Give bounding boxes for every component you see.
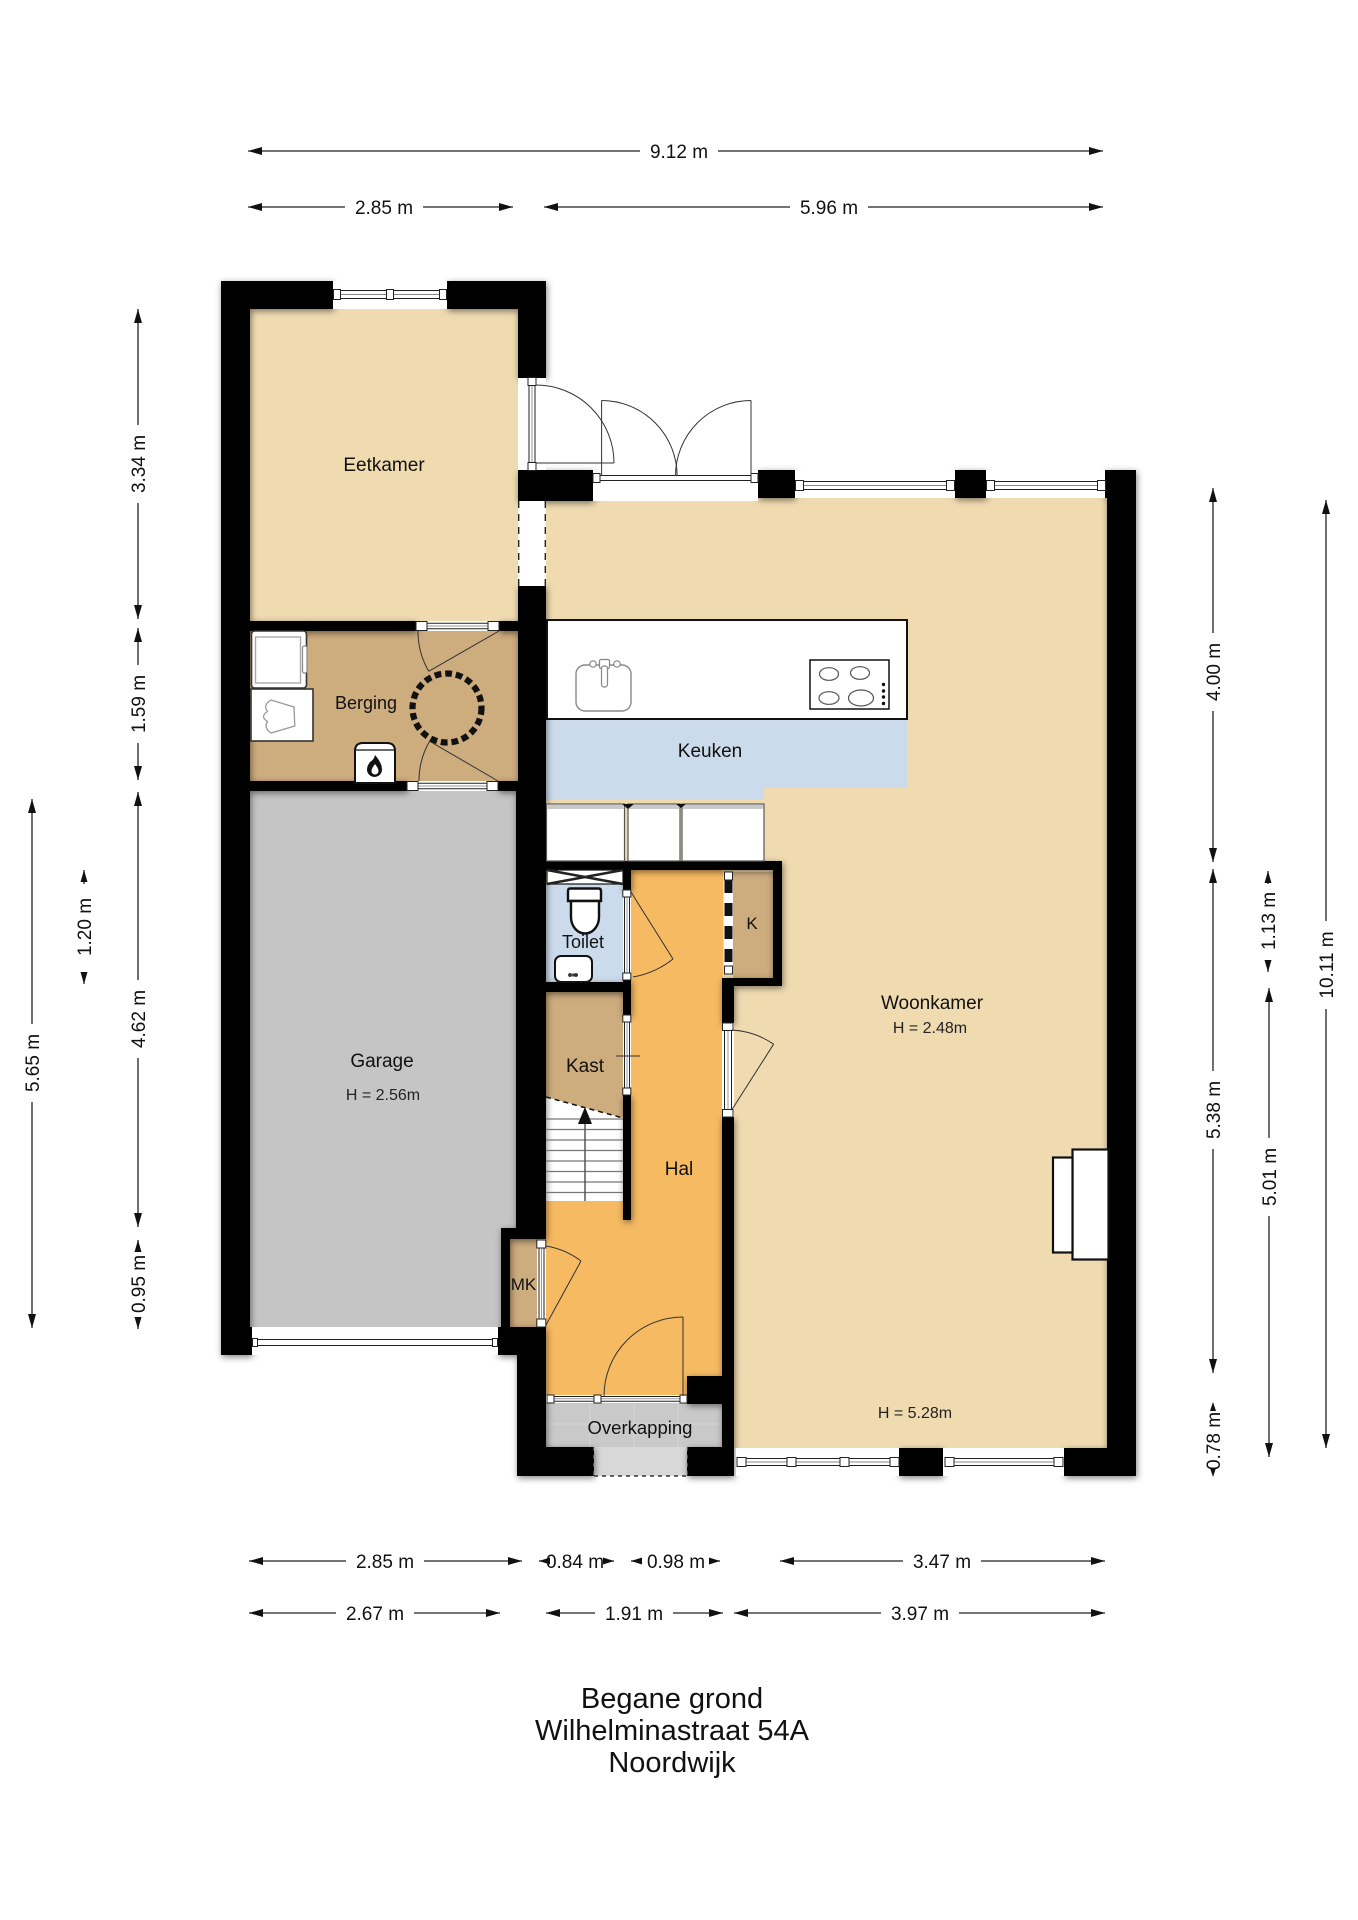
svg-text:5.65 m: 5.65 m (23, 1034, 44, 1092)
svg-text:Berging: Berging (335, 693, 397, 713)
svg-text:Overkapping: Overkapping (588, 1417, 693, 1438)
svg-text:Keuken: Keuken (678, 741, 742, 762)
svg-text:Toilet: Toilet (562, 932, 604, 952)
svg-text:1.91 m: 1.91 m (605, 1604, 663, 1625)
svg-text:Hal: Hal (665, 1159, 694, 1180)
svg-text:0.84 m: 0.84 m (546, 1552, 604, 1573)
svg-text:2.67 m: 2.67 m (346, 1604, 404, 1625)
svg-text:5.38 m: 5.38 m (1204, 1081, 1225, 1139)
svg-text:K: K (746, 914, 758, 933)
svg-text:0.95 m: 0.95 m (129, 1255, 150, 1313)
svg-text:0.98 m: 0.98 m (647, 1552, 705, 1573)
svg-text:2.85 m: 2.85 m (355, 198, 413, 219)
svg-text:5.96 m: 5.96 m (800, 198, 858, 219)
svg-text:3.34 m: 3.34 m (129, 435, 150, 493)
svg-text:4.62 m: 4.62 m (129, 990, 150, 1048)
svg-text:4.00 m: 4.00 m (1204, 643, 1225, 701)
svg-text:Kast: Kast (566, 1056, 605, 1077)
svg-text:1.20 m: 1.20 m (75, 898, 96, 956)
svg-text:H = 5.28m: H = 5.28m (878, 1405, 952, 1422)
svg-text:Woonkamer: Woonkamer (881, 993, 984, 1014)
svg-text:H = 2.48m: H = 2.48m (893, 1020, 967, 1037)
svg-text:Begane grond: Begane grond (581, 1683, 763, 1715)
svg-text:Wilhelminastraat 54A: Wilhelminastraat 54A (535, 1715, 810, 1747)
svg-text:5.01 m: 5.01 m (1260, 1148, 1281, 1206)
svg-text:1.13 m: 1.13 m (1259, 892, 1280, 950)
svg-text:Eetkamer: Eetkamer (343, 455, 425, 476)
svg-text:9.12 m: 9.12 m (650, 142, 708, 163)
svg-text:Garage: Garage (350, 1051, 413, 1072)
svg-text:Noordwijk: Noordwijk (608, 1747, 736, 1779)
svg-text:MK: MK (511, 1275, 537, 1294)
svg-text:1.59 m: 1.59 m (129, 675, 150, 733)
svg-text:H = 2.56m: H = 2.56m (346, 1087, 420, 1104)
svg-text:2.85 m: 2.85 m (356, 1552, 414, 1573)
svg-text:3.47 m: 3.47 m (913, 1552, 971, 1573)
svg-text:0.78 m: 0.78 m (1204, 1412, 1225, 1470)
svg-text:10.11 m: 10.11 m (1317, 931, 1338, 998)
svg-text:3.97 m: 3.97 m (891, 1604, 949, 1625)
